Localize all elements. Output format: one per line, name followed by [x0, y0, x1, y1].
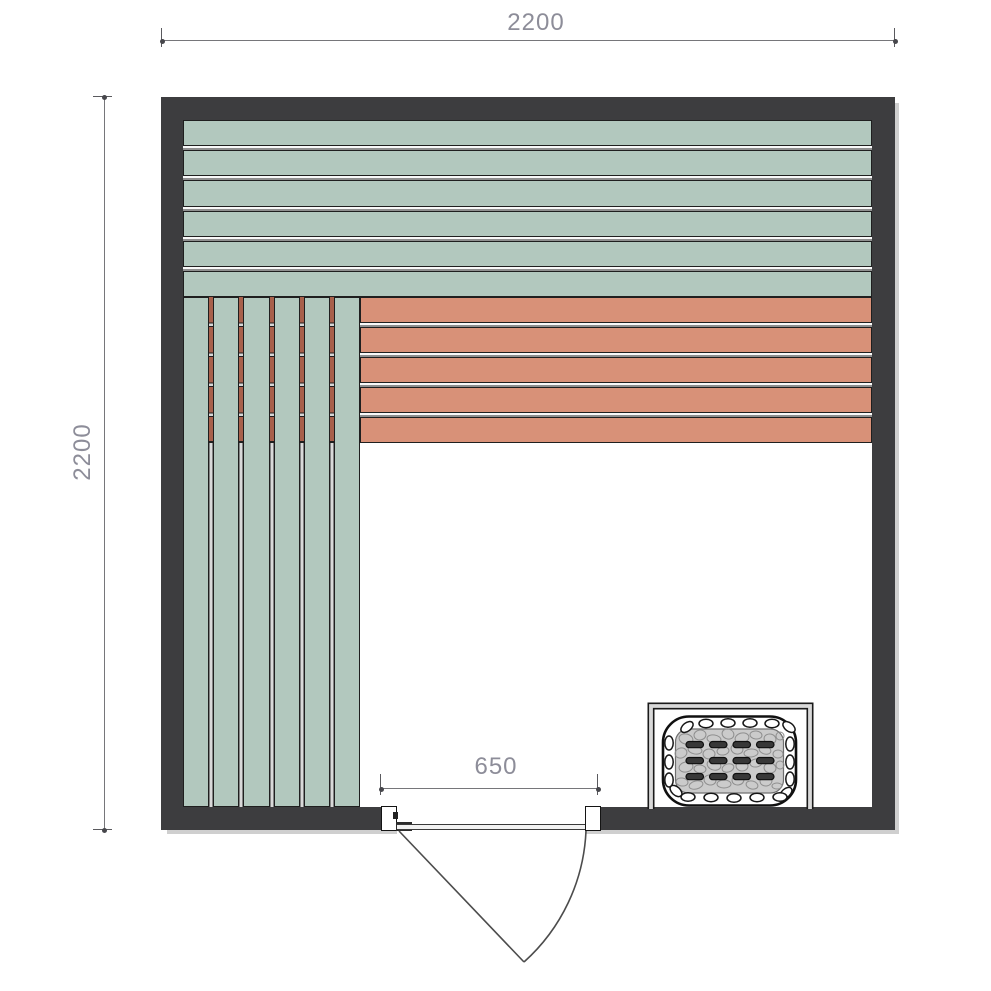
bench-plank	[334, 297, 360, 807]
dimension-line	[381, 788, 598, 789]
bench-plank	[304, 297, 330, 807]
bench-back	[183, 120, 872, 297]
sauna-heater-icon	[640, 693, 820, 815]
dimension-tick	[597, 774, 598, 795]
dimension-endpoint	[596, 787, 601, 792]
bench-plank	[360, 387, 872, 413]
bench-side	[183, 297, 360, 807]
dimension-endpoint	[102, 828, 107, 833]
sauna-floor-plan: 2200 2200	[0, 0, 991, 991]
dimension-line	[104, 97, 105, 830]
dimension-overall-depth-label: 2200	[70, 402, 96, 502]
dimension-endpoint	[379, 787, 384, 792]
bench-plank	[183, 180, 872, 206]
bench-plank	[183, 120, 872, 146]
dimension-endpoint	[160, 39, 165, 44]
dimension-line	[162, 40, 895, 41]
bench-plank	[360, 357, 872, 383]
bench-plank	[360, 297, 872, 323]
bench-plank	[274, 297, 300, 807]
bench-plank	[183, 271, 872, 297]
bench-plank	[183, 211, 872, 237]
bench-plank	[183, 150, 872, 176]
bench-upper	[360, 297, 872, 443]
bench-plank	[360, 417, 872, 443]
bench-plank	[243, 297, 269, 807]
dimension-tick	[894, 28, 895, 47]
dimension-overall-width-label: 2200	[486, 10, 586, 36]
dimension-endpoint	[102, 95, 107, 100]
bench-plank	[360, 327, 872, 353]
dimension-tick	[380, 774, 381, 795]
bench-plank	[183, 241, 872, 267]
door-swing-arc	[370, 815, 620, 985]
bench-plank	[183, 297, 209, 807]
dimension-tick	[161, 28, 162, 47]
bench-plank	[213, 297, 239, 807]
dimension-endpoint	[893, 39, 898, 44]
dimension-door-width-label: 650	[446, 754, 546, 780]
